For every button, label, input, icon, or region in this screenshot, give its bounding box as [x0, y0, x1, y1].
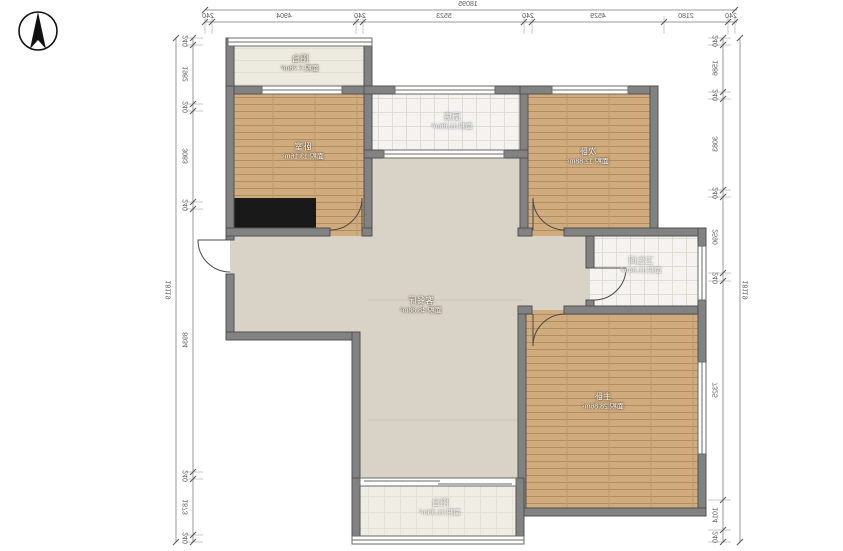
- dimension-label: 2590: [713, 229, 720, 245]
- room-label-balcony-bottom: 阳台 面积:11.33m²: [419, 498, 460, 519]
- dimension-label: 3083: [713, 136, 720, 152]
- dimension-label: 1982: [183, 66, 190, 82]
- room-label-kitchen: 厨房 面积:11.86m²: [431, 112, 472, 133]
- wardrobe: [234, 198, 316, 230]
- dimension-total-label: 18095: [458, 1, 477, 8]
- dimension-label: 240: [183, 470, 190, 482]
- dimension-label: 4904: [276, 13, 292, 20]
- room-label-bedroom-right: 次卧 面积:12.88m²: [567, 147, 609, 168]
- dimension-label: 240: [725, 13, 737, 20]
- dimension-label: 4529: [590, 13, 606, 20]
- dimension-total-label: 18119: [743, 281, 750, 300]
- dimension-label: 1873: [183, 499, 190, 515]
- floor-plan-viewer: 240 4904 240 5523 240 4529 2180 240 1809…: [0, 0, 843, 551]
- dimension-label: 240: [183, 199, 190, 211]
- dimension-label: 2180: [678, 13, 694, 20]
- dimension-label: 240: [713, 35, 720, 47]
- dimension-label: 7325: [713, 382, 720, 398]
- dimension-label: 240: [183, 532, 190, 544]
- dimension-label: 1586: [713, 60, 720, 76]
- dimension-label: 240: [713, 272, 720, 284]
- dimension-label: 1014: [713, 507, 720, 523]
- dimension-label: 3083: [183, 148, 190, 164]
- dimension-label: 240: [183, 35, 190, 47]
- dimension-label: 240: [202, 13, 214, 20]
- dimension-label: 240: [183, 101, 190, 113]
- dimension-label: 240: [713, 531, 720, 543]
- dimension-label: 240: [354, 13, 366, 20]
- room-label-balcony-top: 阳台 面积:7.78m²: [281, 54, 319, 75]
- dimension-label: 240: [713, 89, 720, 101]
- room-label-master-bedroom: 主卧 面积:28.86m²: [582, 392, 624, 413]
- room-label-living-dining: 客餐厅 面积:48.88m²: [400, 296, 442, 317]
- dimension-label: 240: [713, 187, 720, 199]
- dimension-label: 240: [522, 13, 534, 20]
- dimension-label: 8934: [183, 332, 190, 348]
- dimension-label: 5523: [436, 13, 452, 20]
- dimension-total-label: 18119: [166, 281, 173, 300]
- room-label-bathroom: 卫生间 面积:11.84m²: [620, 256, 661, 277]
- room-label-bedroom-left: 卧室 面积:13.16m²: [282, 142, 324, 163]
